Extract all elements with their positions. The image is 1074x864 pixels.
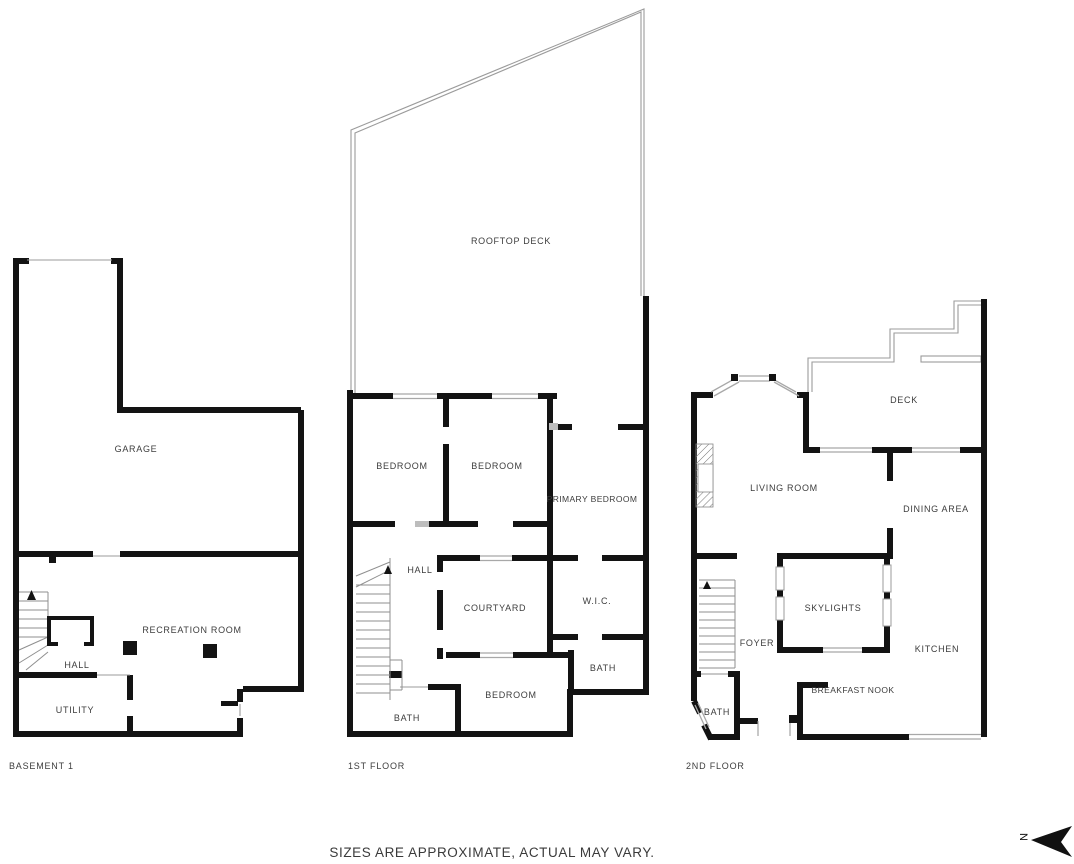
- deck-outline: [808, 301, 982, 392]
- bay-window-icon: [711, 374, 799, 396]
- room-label-deck: DECK: [890, 395, 918, 405]
- floor-label-2nd: 2ND FLOOR: [686, 761, 745, 771]
- floor-label-1st: 1ST FLOOR: [348, 761, 405, 771]
- north-arrow-icon: [1031, 826, 1072, 857]
- room-label-kitchen: KITCHEN: [915, 644, 959, 654]
- room-label-bath-lower: BATH: [394, 713, 420, 723]
- room-label-bath-2nd: BATH: [704, 707, 730, 717]
- second-floor-stairs-icon: [699, 580, 735, 668]
- door-jamb-icon: [49, 557, 56, 563]
- disclaimer-text: SIZES ARE APPROXIMATE, ACTUAL MAY VARY.: [329, 845, 654, 860]
- north-label: N: [1017, 833, 1029, 841]
- door-leaf-icon: [549, 423, 558, 430]
- room-label-primary-bedroom: PRIMARY BEDROOM: [547, 494, 638, 504]
- basement-closet: [47, 618, 94, 646]
- floor-label-basement: BASEMENT 1: [9, 761, 74, 771]
- room-label-bedroom-1: BEDROOM: [376, 461, 427, 471]
- room-label-foyer: FOYER: [740, 638, 775, 648]
- floor-plan-drawing: GARAGE RECREATION ROOM HALL UTILITY BASE…: [0, 0, 1074, 864]
- rooftop-deck-outline: [351, 9, 644, 396]
- room-label-dining-area: DINING AREA: [903, 504, 969, 514]
- room-label-breakfast-nook: BREAKFAST NOOK: [812, 685, 895, 695]
- room-label-utility: UTILITY: [56, 705, 94, 715]
- deck-planter: [921, 356, 981, 362]
- room-label-courtyard: COURTYARD: [464, 603, 526, 613]
- room-label-skylights: SKYLIGHTS: [805, 603, 862, 613]
- room-label-garage: GARAGE: [115, 444, 158, 454]
- door-jamb-icon: [389, 671, 402, 678]
- room-label-bath-upper: BATH: [590, 663, 616, 673]
- door-jamb-icon: [221, 701, 238, 706]
- second-floor-plan: DECK LIVING ROOM DINING AREA SKYLIGHTS F…: [686, 299, 987, 771]
- fireplace-icon: [696, 444, 713, 507]
- column-icon: [203, 644, 217, 658]
- room-label-wic: W.I.C.: [583, 596, 612, 606]
- room-label-hall-1st: HALL: [407, 565, 432, 575]
- first-floor-plan: ROOFTOP DECK BEDROOM BEDROOM PRIMARY BED…: [347, 9, 649, 771]
- room-label-living-room: LIVING ROOM: [750, 483, 818, 493]
- basement-stairs-icon: [19, 590, 48, 670]
- column-icon: [123, 641, 137, 655]
- skylight-windows-icon: [776, 565, 891, 626]
- basement-plan: GARAGE RECREATION ROOM HALL UTILITY BASE…: [9, 258, 304, 771]
- door-leaf-icon: [415, 521, 429, 527]
- door-jamb-icon: [789, 715, 800, 723]
- room-label-recreation: RECREATION ROOM: [142, 625, 241, 635]
- room-label-rooftop-deck: ROOFTOP DECK: [471, 236, 551, 246]
- room-label-bedroom-3: BEDROOM: [485, 690, 536, 700]
- room-label-bedroom-2: BEDROOM: [471, 461, 522, 471]
- floor-plan-sheet: GARAGE RECREATION ROOM HALL UTILITY BASE…: [0, 0, 1074, 864]
- north-compass: N: [1017, 826, 1072, 857]
- first-floor-stairs-icon: [356, 558, 402, 700]
- room-label-hall: HALL: [64, 660, 89, 670]
